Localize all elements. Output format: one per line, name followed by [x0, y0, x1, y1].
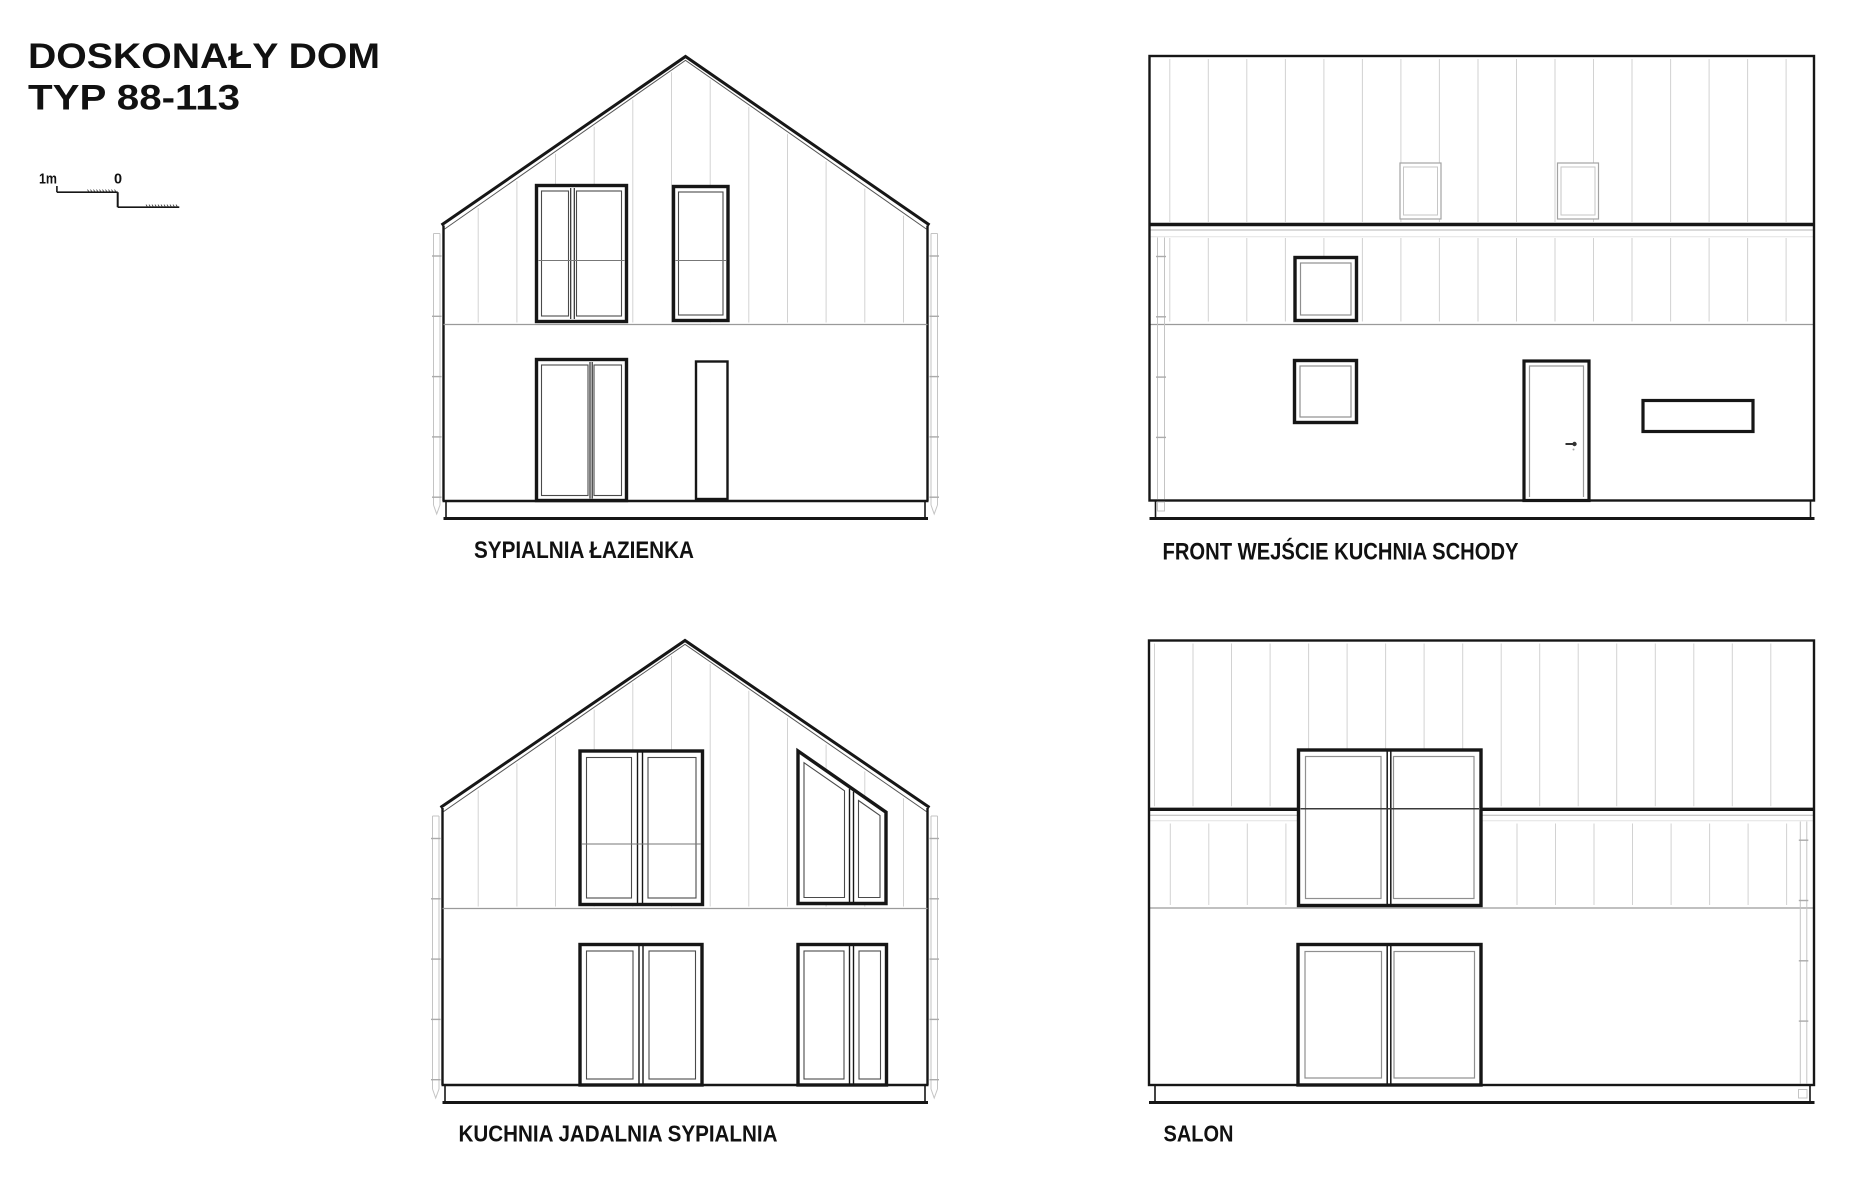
svg-text:SYPIALNIA ŁAZIENKA: SYPIALNIA ŁAZIENKA [474, 537, 694, 564]
svg-text:TYP 88-113: TYP 88-113 [28, 79, 240, 118]
svg-text:KUCHNIA JADALNIA SYPIALNIA: KUCHNIA JADALNIA SYPIALNIA [459, 1121, 778, 1147]
svg-text:SALON: SALON [1164, 1121, 1234, 1147]
svg-text:DOSKONAŁY DOM: DOSKONAŁY DOM [28, 37, 380, 76]
svg-text:1m: 1m [39, 172, 57, 188]
svg-text:FRONT WEJŚCIE KUCHNIA SCHODY: FRONT WEJŚCIE KUCHNIA SCHODY [1163, 538, 1519, 566]
svg-text:0: 0 [114, 172, 122, 188]
